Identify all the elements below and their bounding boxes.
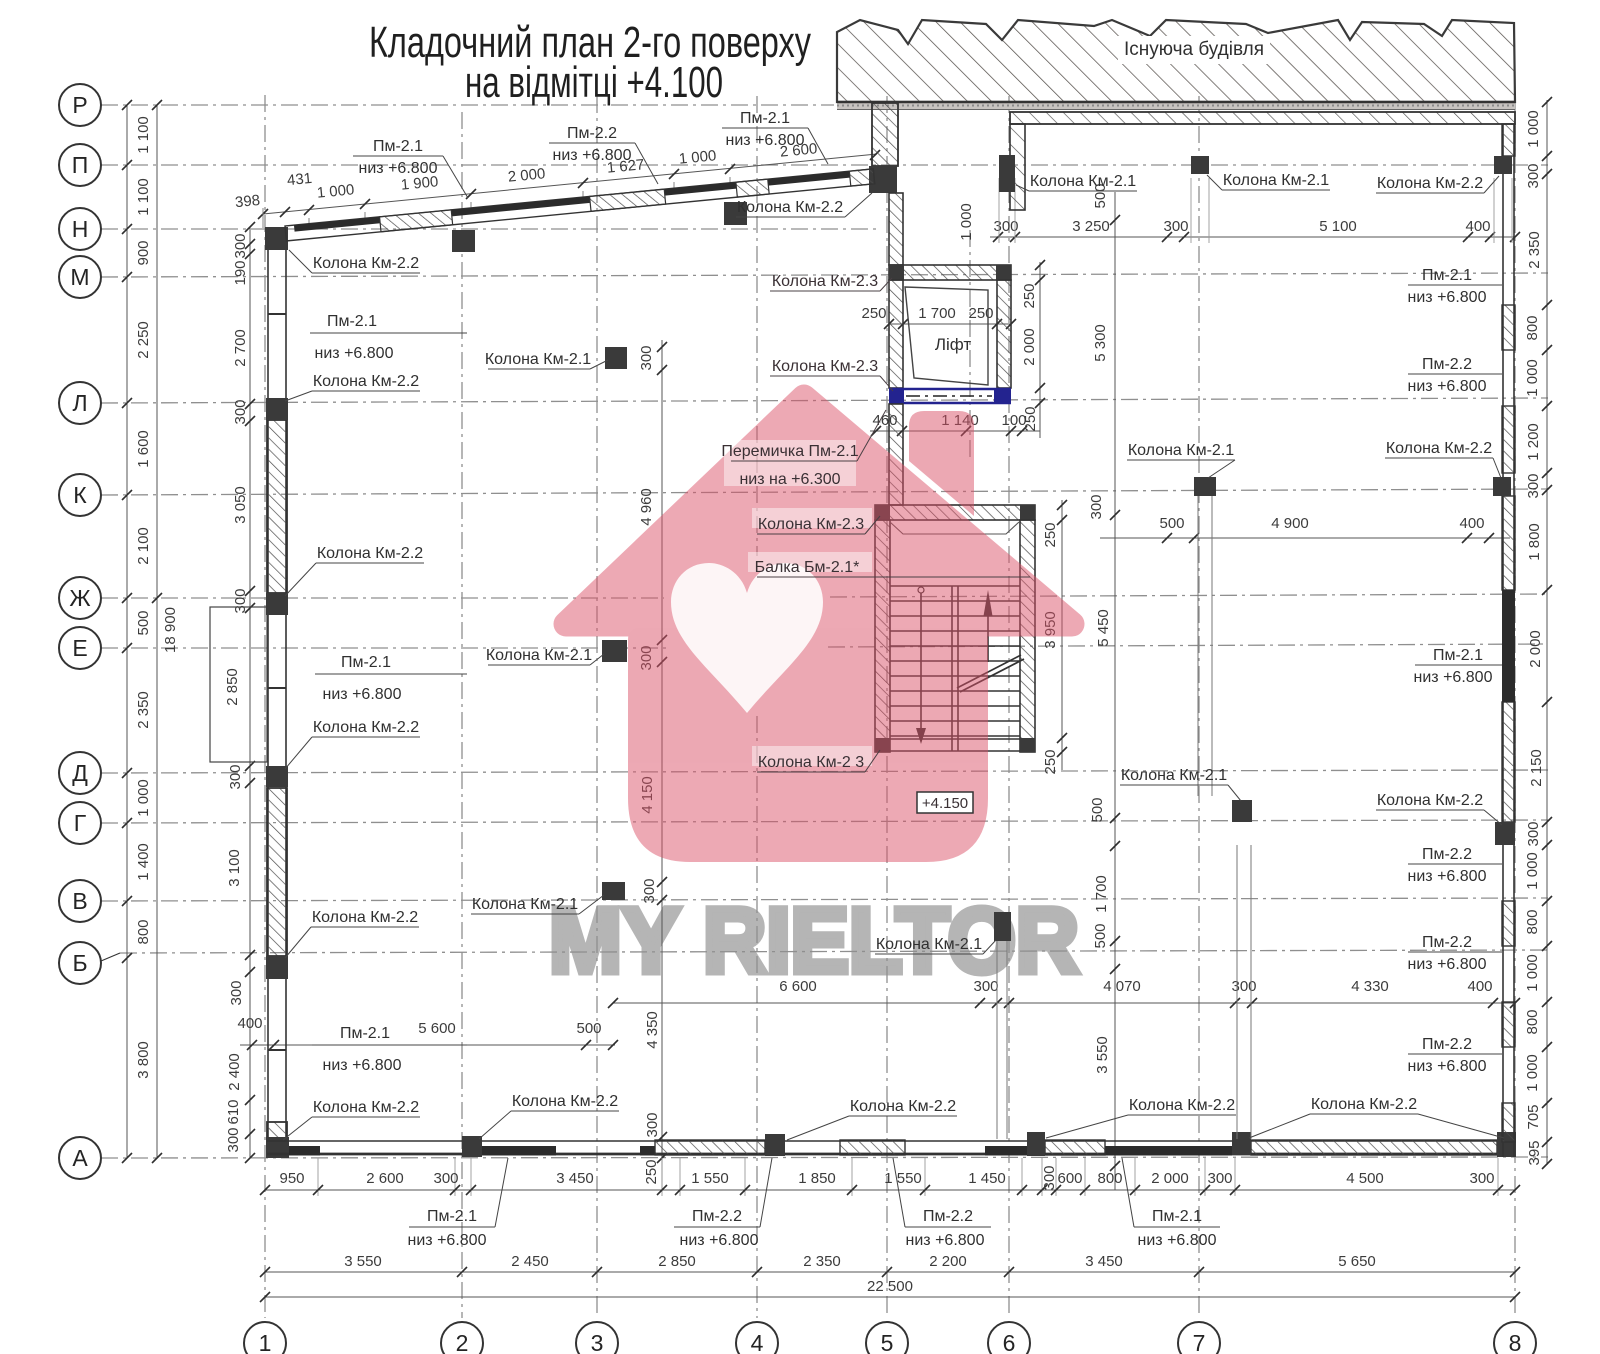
svg-text:Колона Км-2.2: Колона Км-2.2 [1311, 1096, 1417, 1113]
svg-text:250: 250 [968, 305, 993, 322]
svg-text:Колона Км-2.2: Колона Км-2.2 [312, 909, 418, 926]
svg-text:5 100: 5 100 [1319, 218, 1357, 235]
svg-text:18 900: 18 900 [162, 607, 179, 653]
svg-text:800: 800 [1524, 909, 1541, 934]
svg-text:2 250: 2 250 [135, 321, 152, 359]
svg-text:Колона Км-2.2: Колона Км-2.2 [313, 255, 419, 272]
svg-text:1 000: 1 000 [135, 779, 152, 817]
svg-text:800: 800 [1524, 315, 1541, 340]
svg-text:300: 300 [433, 1170, 458, 1187]
svg-text:Пм-2.2: Пм-2.2 [1422, 356, 1472, 373]
svg-text:300: 300 [227, 764, 244, 789]
svg-text:1 700: 1 700 [1093, 875, 1110, 913]
svg-text:2 700: 2 700 [232, 329, 249, 367]
svg-text:2 000: 2 000 [1151, 1170, 1189, 1187]
svg-text:на відмітці +4.100: на відмітці +4.100 [465, 58, 723, 107]
svg-text:3 250: 3 250 [1072, 218, 1110, 235]
svg-text:190: 190 [232, 260, 249, 285]
svg-text:4 960: 4 960 [638, 488, 655, 526]
svg-text:300: 300 [644, 1112, 661, 1137]
svg-text:250: 250 [1042, 749, 1059, 774]
svg-text:Колона Км-2.1: Колона Км-2.1 [1030, 173, 1136, 190]
svg-text:Колона Км-2.1: Колона Км-2.1 [1223, 172, 1329, 189]
svg-text:6 600: 6 600 [779, 978, 817, 995]
svg-text:5 450: 5 450 [1095, 609, 1112, 647]
svg-text:398: 398 [234, 192, 261, 211]
svg-text:800: 800 [135, 919, 152, 944]
svg-text:Колона Км-2.2: Колона Км-2.2 [317, 545, 423, 562]
svg-text:2 200: 2 200 [929, 1253, 967, 1270]
svg-text:Балка Бм-2.1*: Балка Бм-2.1* [755, 559, 860, 576]
svg-text:705: 705 [1525, 1104, 1542, 1129]
svg-text:Пм-2.1: Пм-2.1 [1433, 647, 1483, 664]
svg-text:300: 300 [228, 980, 245, 1005]
svg-text:5 600: 5 600 [418, 1020, 456, 1037]
svg-text:Колона Км-2.3: Колона Км-2.3 [758, 516, 864, 533]
svg-text:300: 300 [232, 233, 249, 258]
svg-text:Пм-2.1: Пм-2.1 [1422, 267, 1472, 284]
svg-text:300: 300 [232, 399, 249, 424]
svg-text:300: 300 [973, 978, 998, 995]
svg-text:250: 250 [643, 1159, 660, 1184]
svg-text:1 100: 1 100 [135, 178, 152, 216]
svg-text:2 850: 2 850 [658, 1253, 696, 1270]
svg-text:Е: Е [72, 635, 87, 661]
svg-text:Ліфт: Ліфт [935, 335, 972, 354]
svg-text:1 000: 1 000 [1525, 110, 1542, 148]
svg-text:низ +6.800: низ +6.800 [359, 160, 438, 177]
svg-text:Колона Км-2.3: Колона Км-2.3 [772, 358, 878, 375]
svg-text:500: 500 [1089, 797, 1106, 822]
svg-text:1 000: 1 000 [1524, 359, 1541, 397]
svg-text:Колона Км-2.2: Колона Км-2.2 [737, 199, 843, 216]
svg-text:250: 250 [861, 305, 886, 322]
svg-text:400: 400 [1467, 978, 1492, 995]
svg-text:Пм-2.1: Пм-2.1 [341, 654, 391, 671]
svg-text:низ на +6.300: низ на +6.300 [739, 471, 840, 488]
svg-text:300: 300 [1525, 821, 1542, 846]
svg-text:низ +6.800: низ +6.800 [1414, 669, 1493, 686]
svg-text:низ +6.800: низ +6.800 [408, 1232, 487, 1249]
svg-text:низ +6.800: низ +6.800 [323, 1057, 402, 1074]
svg-text:3 450: 3 450 [556, 1170, 594, 1187]
svg-text:Б: Б [72, 950, 87, 976]
svg-text:1 800: 1 800 [1526, 523, 1543, 561]
svg-text:Г: Г [74, 810, 87, 836]
svg-text:А: А [72, 1145, 88, 1171]
svg-text:низ +6.800: низ +6.800 [1408, 289, 1487, 306]
svg-text:2 350: 2 350 [1526, 231, 1543, 269]
svg-text:2: 2 [456, 1330, 469, 1354]
svg-text:300: 300 [225, 1127, 242, 1152]
svg-text:300: 300 [1231, 978, 1256, 995]
svg-text:К: К [73, 482, 87, 508]
svg-text:низ +6.800: низ +6.800 [680, 1232, 759, 1249]
svg-text:Пм-2.2: Пм-2.2 [1422, 846, 1472, 863]
svg-text:Пм-2.2: Пм-2.2 [923, 1208, 973, 1225]
svg-text:5: 5 [881, 1330, 894, 1354]
svg-text:Колона Км-2.2: Колона Км-2.2 [850, 1098, 956, 1115]
svg-text:Пм-2.2: Пм-2.2 [567, 125, 617, 142]
svg-text:1 000: 1 000 [958, 203, 975, 241]
svg-text:5 650: 5 650 [1338, 1253, 1376, 1270]
svg-text:431: 431 [286, 170, 313, 189]
svg-text:Колона Км-2.2: Колона Км-2.2 [512, 1093, 618, 1110]
svg-text:1 100: 1 100 [135, 116, 152, 154]
svg-text:Колона Км-2.2: Колона Км-2.2 [1386, 440, 1492, 457]
svg-text:В: В [72, 888, 87, 914]
svg-text:6: 6 [1003, 1330, 1016, 1354]
svg-text:400: 400 [237, 1015, 262, 1032]
svg-text:2 000: 2 000 [1527, 630, 1544, 668]
svg-text:Пм-2.1: Пм-2.1 [340, 1025, 390, 1042]
svg-text:Колона Км-2.1: Колона Км-2.1 [1128, 442, 1234, 459]
svg-text:900: 900 [135, 240, 152, 265]
svg-text:800: 800 [1524, 1009, 1541, 1034]
svg-text:600: 600 [1057, 1170, 1082, 1187]
svg-text:низ +6.800: низ +6.800 [906, 1232, 985, 1249]
svg-text:1 700: 1 700 [918, 305, 956, 322]
svg-text:Колона Км-2.1: Колона Км-2.1 [485, 351, 591, 368]
svg-text:Пм-2.2: Пм-2.2 [1422, 1036, 1472, 1053]
svg-text:2 000: 2 000 [1021, 328, 1038, 366]
svg-text:Колона Км-2.3: Колона Км-2.3 [772, 273, 878, 290]
svg-text:8: 8 [1509, 1330, 1522, 1354]
svg-text:2 350: 2 350 [803, 1253, 841, 1270]
svg-text:400: 400 [1459, 515, 1484, 532]
svg-text:М: М [70, 264, 89, 290]
svg-text:3: 3 [591, 1330, 604, 1354]
svg-text:300: 300 [641, 878, 658, 903]
svg-text:низ +6.800: низ +6.800 [1408, 1058, 1487, 1075]
svg-text:22 500: 22 500 [867, 1278, 913, 1295]
svg-text:Колона Км-2.2: Колона Км-2.2 [313, 373, 419, 390]
svg-text:800: 800 [1097, 1170, 1122, 1187]
svg-text:1 000: 1 000 [678, 147, 717, 168]
svg-text:3 550: 3 550 [1094, 1036, 1111, 1074]
svg-text:1 000: 1 000 [1524, 852, 1541, 890]
svg-text:3 100: 3 100 [226, 849, 243, 887]
svg-text:+4.150: +4.150 [922, 795, 968, 812]
svg-text:2 150: 2 150 [1528, 749, 1545, 787]
svg-text:300: 300 [232, 588, 249, 613]
svg-text:5 300: 5 300 [1092, 324, 1109, 362]
svg-text:500: 500 [1159, 515, 1184, 532]
svg-text:400: 400 [1465, 218, 1490, 235]
svg-text:395: 395 [1526, 1140, 1543, 1165]
svg-text:низ +6.800: низ +6.800 [1408, 378, 1487, 395]
svg-text:500: 500 [1092, 923, 1109, 948]
svg-text:Пм-2.2: Пм-2.2 [1422, 934, 1472, 951]
svg-text:2 400: 2 400 [226, 1053, 243, 1091]
svg-text:Д: Д [72, 760, 88, 786]
svg-text:3 450: 3 450 [1085, 1253, 1123, 1270]
svg-text:300: 300 [1469, 1170, 1494, 1187]
svg-text:Колона Км-2.2: Колона Км-2.2 [1377, 175, 1483, 192]
svg-text:Колона Км-2.1: Колона Км-2.1 [1121, 767, 1227, 784]
svg-text:Пм-2.1: Пм-2.1 [427, 1208, 477, 1225]
svg-text:Колона Км-2.1: Колона Км-2.1 [472, 896, 578, 913]
svg-text:Перемичка Пм-2.1: Перемичка Пм-2.1 [721, 443, 858, 460]
svg-text:2 450: 2 450 [511, 1253, 549, 1270]
svg-text:Р: Р [72, 92, 87, 118]
svg-text:300: 300 [638, 345, 655, 370]
svg-text:Колона Км-2.1: Колона Км-2.1 [486, 647, 592, 664]
svg-text:низ +6.800: низ +6.800 [726, 132, 805, 149]
svg-text:Ж: Ж [69, 585, 90, 611]
svg-text:Л: Л [72, 390, 87, 416]
svg-text:4 500: 4 500 [1346, 1170, 1384, 1187]
svg-text:1: 1 [259, 1330, 272, 1354]
svg-text:1 600: 1 600 [135, 430, 152, 468]
svg-text:4 350: 4 350 [644, 1011, 661, 1049]
svg-text:низ +6.800: низ +6.800 [553, 147, 632, 164]
svg-text:300: 300 [1163, 218, 1188, 235]
svg-text:300: 300 [1525, 473, 1542, 498]
svg-text:4 900: 4 900 [1271, 515, 1309, 532]
svg-text:Пм-2.2: Пм-2.2 [692, 1208, 742, 1225]
svg-text:низ +6.800: низ +6.800 [1138, 1232, 1217, 1249]
svg-text:Колона Км-2.2: Колона Км-2.2 [1129, 1097, 1235, 1114]
svg-text:П: П [72, 152, 89, 178]
svg-text:2 350: 2 350 [135, 691, 152, 729]
svg-text:4 070: 4 070 [1103, 978, 1141, 995]
svg-text:2 100: 2 100 [135, 527, 152, 565]
svg-text:1 550: 1 550 [691, 1170, 729, 1187]
svg-text:250: 250 [1021, 283, 1038, 308]
svg-text:Колона Км-2.2: Колона Км-2.2 [313, 719, 419, 736]
svg-text:2 850: 2 850 [224, 668, 241, 706]
svg-text:610: 610 [225, 1099, 242, 1124]
svg-text:низ +6.800: низ +6.800 [1408, 868, 1487, 885]
svg-text:Існуюча будівля: Існуюча будівля [1124, 39, 1264, 60]
svg-text:Колона Км-2.2: Колона Км-2.2 [313, 1099, 419, 1116]
svg-text:7: 7 [1193, 1330, 1206, 1354]
svg-text:300: 300 [1041, 1165, 1058, 1190]
svg-text:низ +6.800: низ +6.800 [323, 686, 402, 703]
svg-text:250: 250 [1022, 406, 1039, 431]
svg-text:500: 500 [576, 1020, 601, 1037]
svg-text:Н: Н [72, 216, 89, 242]
svg-text:300: 300 [1207, 1170, 1232, 1187]
svg-text:500: 500 [135, 610, 152, 635]
svg-text:Пм-2.1: Пм-2.1 [1152, 1208, 1202, 1225]
svg-text:низ +6.800: низ +6.800 [1408, 956, 1487, 973]
svg-text:2 600: 2 600 [366, 1170, 404, 1187]
svg-text:1 450: 1 450 [968, 1170, 1006, 1187]
svg-text:Колона Км-2 3: Колона Км-2 3 [758, 754, 864, 771]
svg-text:1 850: 1 850 [798, 1170, 836, 1187]
svg-text:300: 300 [1088, 494, 1105, 519]
svg-text:1 000: 1 000 [1524, 954, 1541, 992]
svg-text:Пм-2.1: Пм-2.1 [327, 313, 377, 330]
svg-text:3 800: 3 800 [135, 1041, 152, 1079]
svg-text:Колона Км-2.1: Колона Км-2.1 [876, 936, 982, 953]
svg-text:3 550: 3 550 [344, 1253, 382, 1270]
svg-text:Пм-2.1: Пм-2.1 [740, 110, 790, 127]
svg-text:низ +6.800: низ +6.800 [315, 345, 394, 362]
svg-text:1 400: 1 400 [135, 843, 152, 881]
svg-text:250: 250 [1042, 522, 1059, 547]
svg-text:3 050: 3 050 [232, 486, 249, 524]
svg-text:300: 300 [1525, 163, 1542, 188]
svg-text:2 000: 2 000 [507, 165, 546, 186]
svg-text:1 000: 1 000 [316, 181, 355, 202]
svg-text:4: 4 [751, 1330, 764, 1354]
svg-text:Колона Км-2.2: Колона Км-2.2 [1377, 792, 1483, 809]
svg-text:1 550: 1 550 [884, 1170, 922, 1187]
svg-text:1 200: 1 200 [1525, 423, 1542, 461]
svg-text:4 330: 4 330 [1351, 978, 1389, 995]
svg-text:1 000: 1 000 [1524, 1054, 1541, 1092]
svg-text:Пм-2.1: Пм-2.1 [373, 138, 423, 155]
svg-text:950: 950 [279, 1170, 304, 1187]
